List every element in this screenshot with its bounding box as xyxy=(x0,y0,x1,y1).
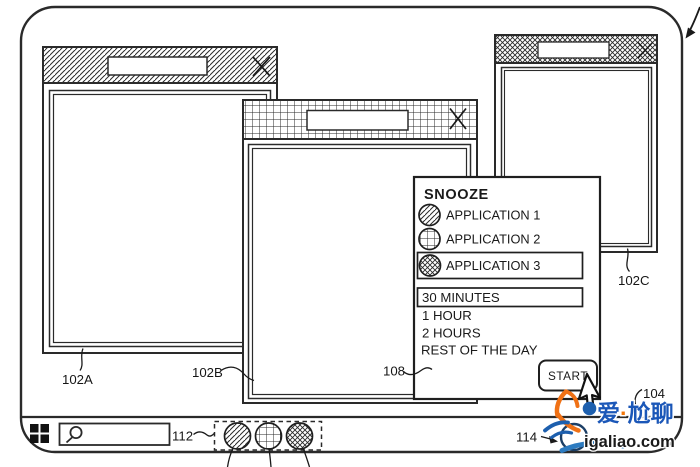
window-102a-content xyxy=(50,91,271,347)
application-3-icon xyxy=(420,255,441,276)
label-108: 108 xyxy=(383,364,405,379)
start-menu-button[interactable] xyxy=(30,424,49,443)
window-102a-title-box xyxy=(108,57,207,75)
patent-figure: SNOOZE APPLICATION 1 APPLICATION 2 APPLI… xyxy=(0,0,700,467)
watermark-cn-dot: · xyxy=(620,400,628,426)
window-102c-title-box xyxy=(538,42,609,58)
label-114: 114 xyxy=(516,430,537,445)
application-3-label: APPLICATION 3 xyxy=(446,258,540,273)
application-1-label: APPLICATION 1 xyxy=(446,208,540,223)
label-104: 104 xyxy=(643,386,665,401)
watermark-site-text: igaliao.com xyxy=(584,433,675,451)
duration-30-minutes-label: 30 MINUTES xyxy=(422,290,500,305)
watermark-cn-1: 爱 xyxy=(597,400,620,426)
figure-canvas: SNOOZE APPLICATION 1 APPLICATION 2 APPLI… xyxy=(0,0,700,467)
application-1-icon xyxy=(419,205,440,226)
start-button-label: START xyxy=(548,369,588,383)
application-2-icon xyxy=(419,229,440,250)
label-102a: 102A xyxy=(62,372,93,387)
snooze-dialog-title: SNOOZE xyxy=(424,187,489,203)
label-102c: 102C xyxy=(618,273,650,288)
taskbar-app-3-icon[interactable] xyxy=(287,423,313,449)
watermark-cn-text: 爱·尬聊 xyxy=(597,400,674,426)
taskbar-app-2-icon[interactable] xyxy=(256,423,282,449)
application-2-row[interactable]: APPLICATION 2 xyxy=(419,229,540,250)
snoozed-apps-tray-group xyxy=(215,422,322,467)
snooze-dialog: SNOOZE APPLICATION 1 APPLICATION 2 APPLI… xyxy=(414,177,600,399)
duration-2-hours[interactable]: 2 HOURS xyxy=(422,326,481,341)
search-box[interactable] xyxy=(60,424,170,446)
duration-1-hour[interactable]: 1 HOUR xyxy=(422,308,472,323)
label-102b: 102B xyxy=(192,365,223,380)
figure-reference-arrow xyxy=(686,7,700,39)
application-1-row[interactable]: APPLICATION 1 xyxy=(419,205,540,226)
application-2-label: APPLICATION 2 xyxy=(446,232,540,247)
taskbar-app-1-icon[interactable] xyxy=(225,423,251,449)
duration-rest-of-day[interactable]: REST OF THE DAY xyxy=(421,343,538,358)
window-102b-title-box xyxy=(307,111,408,131)
label-112: 112 xyxy=(172,429,193,444)
watermark-cn-2: 尬聊 xyxy=(628,400,674,426)
window-102a[interactable] xyxy=(43,47,277,353)
